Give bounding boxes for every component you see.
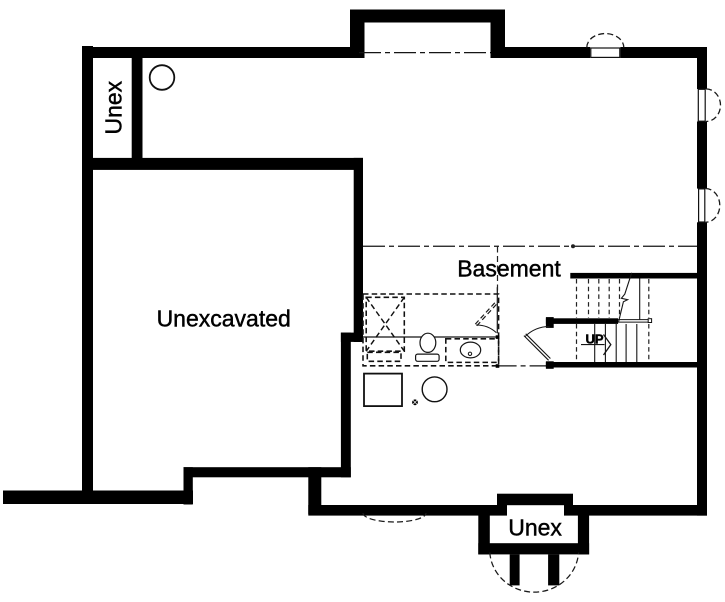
svg-text:Unex: Unex <box>101 80 127 134</box>
svg-text:Unex: Unex <box>508 514 562 540</box>
svg-text:Unexcavated: Unexcavated <box>157 306 291 332</box>
svg-text:Basement: Basement <box>457 256 561 282</box>
svg-text:UP: UP <box>586 331 604 346</box>
